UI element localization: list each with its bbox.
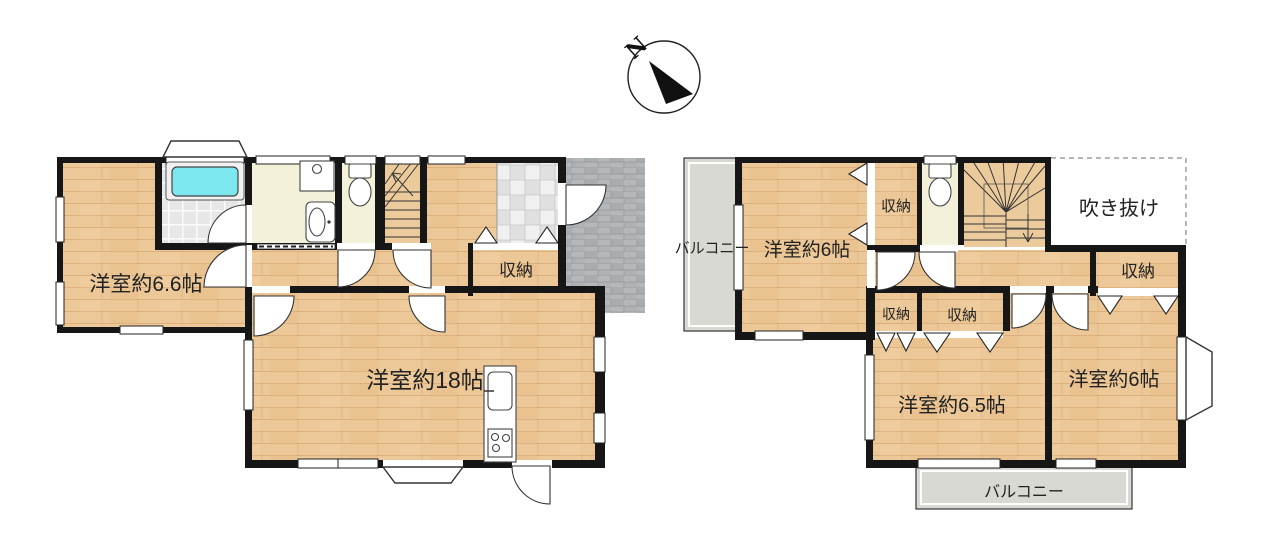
stairs1f-floor xyxy=(385,157,420,247)
bay-window-room18 xyxy=(383,467,463,483)
floor1-plan: 洋室約6.6帖 洋室約18帖 収納 xyxy=(56,141,645,504)
bay-window-bath xyxy=(163,141,247,157)
toilet-2f xyxy=(929,164,951,206)
balcony-bottom-label: バルコニー xyxy=(984,484,1064,501)
closet-1f-label: 収納 xyxy=(499,261,533,280)
floor2-plan: バルコニー 洋室約6帖 収納 吹き抜け 収納 収納 収納 洋室約6.5帖 洋室約… xyxy=(675,156,1212,509)
room-6-nw-label: 洋室約6帖 xyxy=(764,239,851,261)
room-6.5-label: 洋室約6.5帖 xyxy=(898,394,1006,417)
room-6.6-label: 洋室約6.6帖 xyxy=(89,273,202,296)
washroom-sliding-door xyxy=(257,244,335,249)
room18-exterior-door xyxy=(512,466,550,504)
bay-window-room6se xyxy=(1186,337,1212,420)
room-18-label: 洋室約18帖 xyxy=(366,367,484,393)
compass-icon: N xyxy=(621,32,700,113)
closet-b-label: 収納 xyxy=(947,307,977,324)
kitchen-counter xyxy=(484,366,516,462)
closet-hall-label: 収納 xyxy=(1121,262,1155,281)
washing-machine xyxy=(300,161,334,191)
closet-a-label: 収納 xyxy=(882,306,910,322)
room-6-se-label: 洋室約6帖 xyxy=(1068,368,1159,391)
vanity-sink xyxy=(306,202,335,242)
floor-plan-drawing: 洋室約6.6帖 洋室約18帖 収納 xyxy=(0,0,1280,533)
floor-plan-canvas: 洋室約6.6帖 洋室約18帖 収納 xyxy=(0,0,1280,533)
stove xyxy=(488,429,512,457)
closet-upper-label: 収納 xyxy=(881,198,911,215)
toilet-1f xyxy=(349,164,371,206)
atrium-label: 吹き抜け xyxy=(1079,197,1159,220)
balcony-left-label: バルコニー xyxy=(675,240,750,257)
bathtub xyxy=(166,162,244,200)
